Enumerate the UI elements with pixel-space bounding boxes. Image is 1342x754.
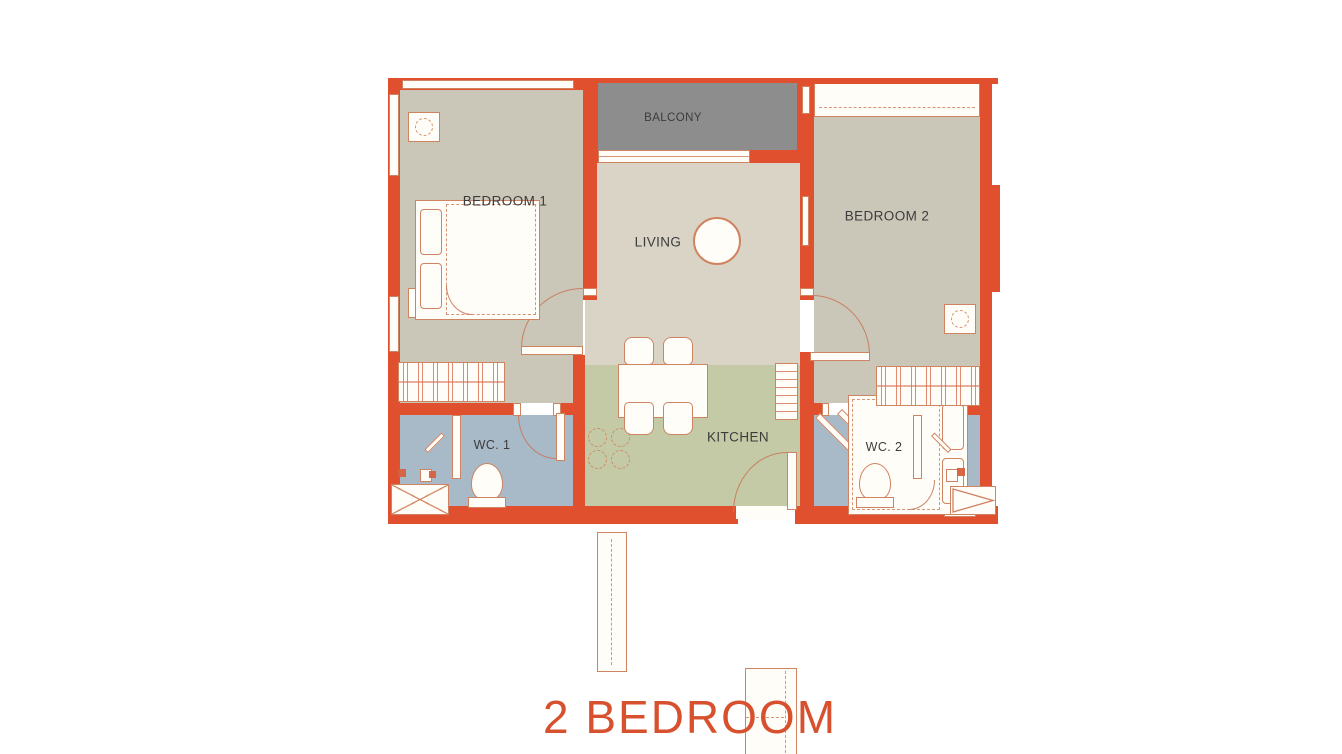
bed-1 [415,200,540,320]
wc1-door-leaf [556,413,565,461]
round-table [693,217,741,265]
nightstand-2a [944,304,976,334]
plan-title: 2 BEDROOM [543,690,837,744]
living-label: LIVING [635,235,682,250]
wc1-partition [452,415,461,479]
wc1-label: WC. 1 [474,438,511,452]
balcony-door-slot [802,86,810,114]
shaft-cross [391,484,449,515]
bedroom1-door-leaf [521,346,583,355]
wall-right-pillar [980,185,1000,292]
wall-wc1-top-left [388,403,513,415]
bedroom2-door-leaf [810,352,870,361]
bedroom1-label: BEDROOM 1 [463,194,548,209]
stove-burner [588,428,607,447]
chair [663,402,693,435]
toilet-2-bowl [859,463,891,501]
wall-top-bedroom2 [797,78,998,84]
chair [624,402,654,435]
window-left-lower [389,296,399,352]
wall-bedroom1-kitchen-lower [573,355,585,506]
toilet-1-tank [468,497,506,508]
tv-console [597,532,627,672]
lamp-icon [951,310,969,328]
bedroom1-door-jamb [583,288,597,296]
chair [663,337,693,365]
nightstand-1a [408,112,440,142]
toilet-1-bowl [471,463,503,501]
pillow [420,263,442,309]
bedroom2-label: BEDROOM 2 [845,209,930,224]
wall-bedroom2-kitchen-lower [800,352,814,506]
pillow [420,209,442,255]
floor-drain [957,468,965,476]
window-bedroom1-top [402,80,574,89]
stove-burner [588,450,607,469]
entrance-door-leaf [787,452,797,510]
wc2-label: WC. 2 [866,440,903,454]
floor-plan-page: BALCONY BEDROOM 1 LIVING BEDROOM 2 WC. 1… [0,0,1342,754]
wc2-door-jamb-left [822,403,829,416]
stove-burner [611,450,630,469]
shelf-rack [775,363,798,420]
balcony-sliding-door [598,150,750,163]
wardrobe-1 [398,362,505,402]
chair [624,337,654,365]
toilet-2-tank [856,497,894,508]
wall-bedroom1-living-upper [583,78,597,300]
window-left-upper [389,94,399,176]
shaft-triangle [950,486,996,515]
triangle-icon [951,487,995,514]
wc2-partition [913,415,922,479]
living-floor [585,160,800,365]
wall-tv [802,196,809,246]
lamp-icon [415,118,433,136]
wardrobe-2 [876,366,980,406]
ledge-detail-line [819,107,975,108]
floor-drain [398,469,406,477]
wall-balcony-band-right [750,150,800,163]
sliding-door-track [599,156,749,157]
bedroom2-window-ledge [814,83,980,117]
kitchen-label: KITCHEN [707,430,769,445]
wall-top-balcony [585,78,797,83]
balcony-label: BALCONY [644,112,702,124]
floor-drain [429,471,436,478]
wall-right [980,78,992,524]
console-detail [611,539,612,665]
